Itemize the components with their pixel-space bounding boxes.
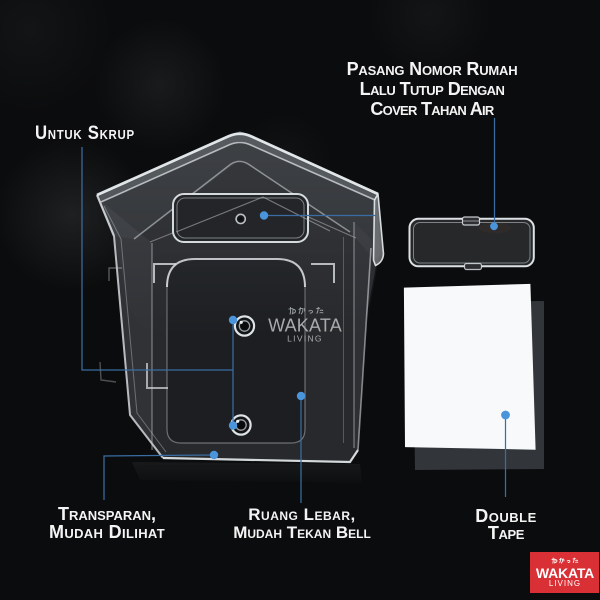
svg-text:LIVING: LIVING <box>287 334 323 344</box>
svg-text:LIVING: LIVING <box>549 579 581 588</box>
svg-text:WAKATA: WAKATA <box>268 316 342 336</box>
